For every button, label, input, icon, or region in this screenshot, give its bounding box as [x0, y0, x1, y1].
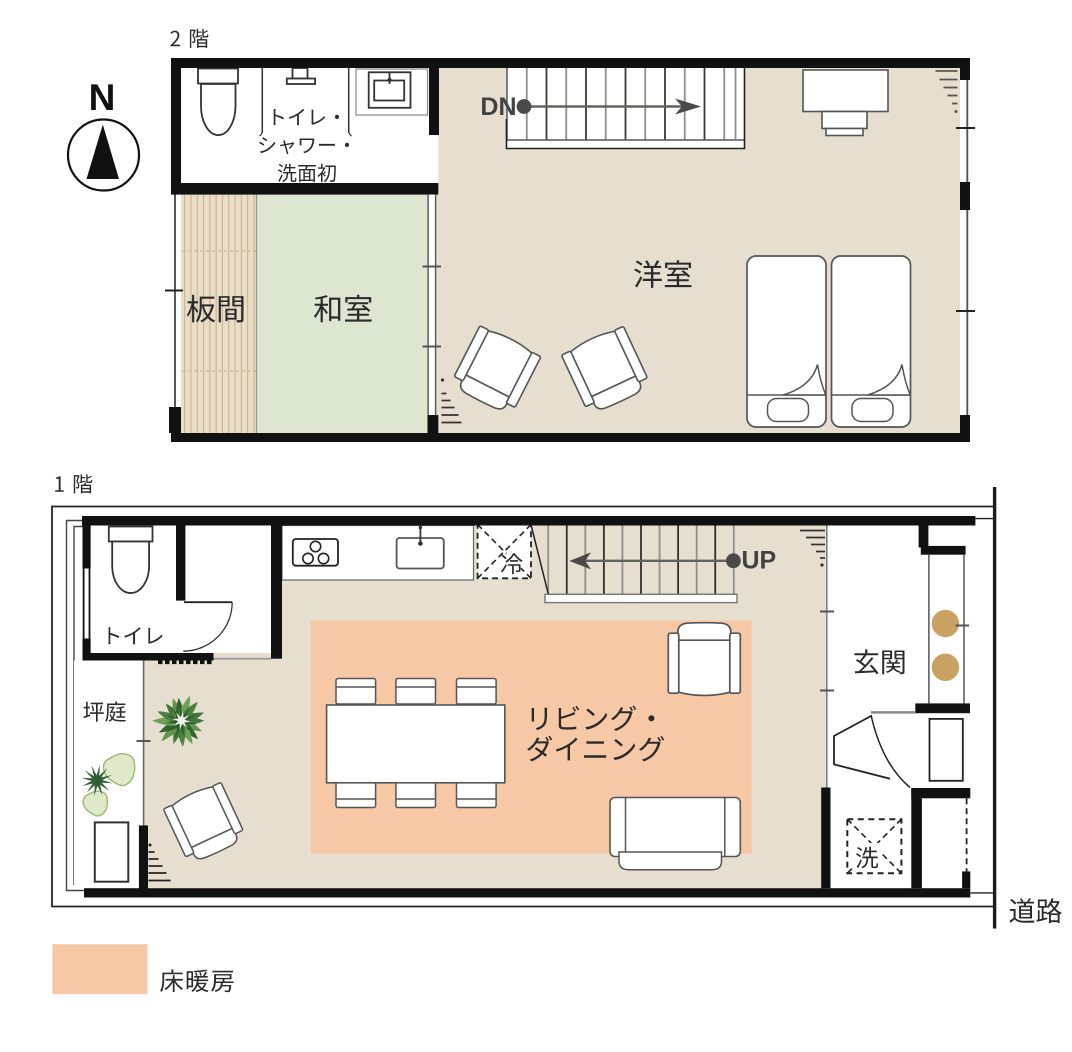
svg-text:N: N	[89, 77, 116, 118]
svg-text:DN: DN	[480, 93, 516, 121]
svg-text:UP: UP	[742, 547, 777, 575]
